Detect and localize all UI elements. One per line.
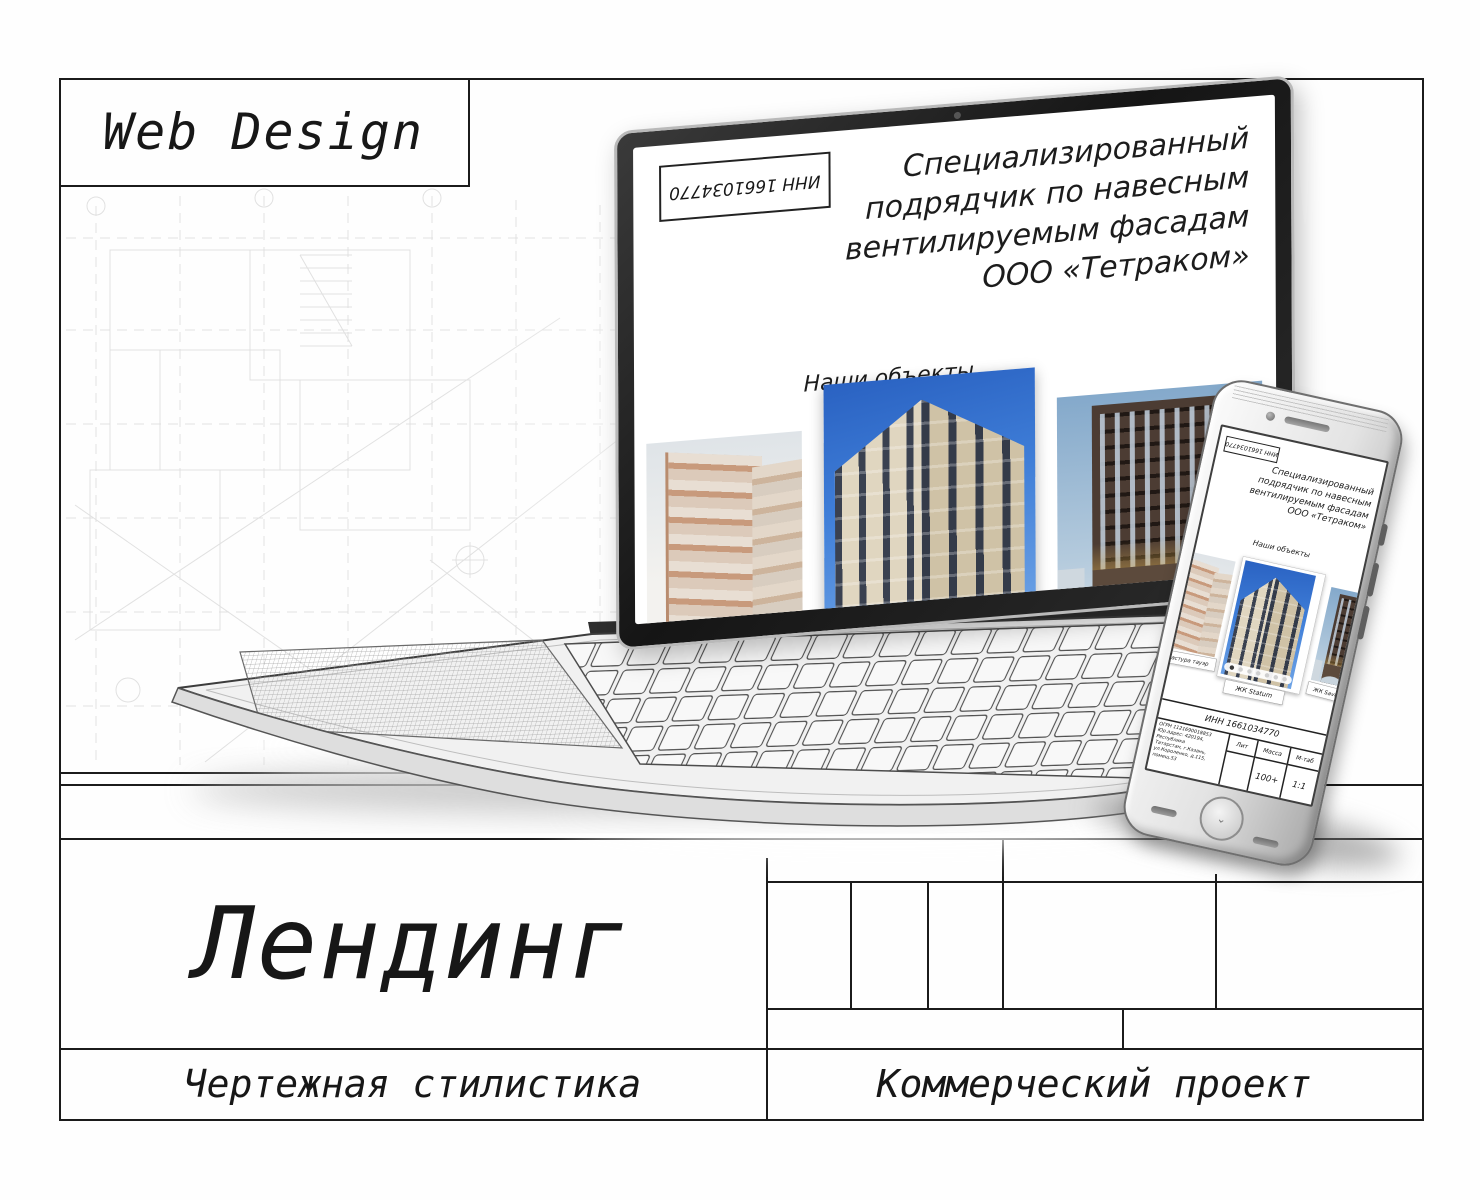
project-image[interactable] bbox=[646, 431, 802, 624]
design-poster: Web Design Лендинг Чертежная стилистика … bbox=[0, 0, 1480, 1200]
project-image[interactable] bbox=[824, 367, 1036, 624]
webcam-icon bbox=[954, 112, 961, 120]
camera-icon bbox=[1265, 411, 1276, 422]
building-art bbox=[834, 391, 1025, 624]
building-art bbox=[1058, 568, 1085, 619]
mass-value: 100+ bbox=[1247, 758, 1286, 799]
home-button[interactable]: ⌄ bbox=[1195, 792, 1247, 844]
mic-slot bbox=[1252, 836, 1279, 848]
building-art bbox=[665, 452, 762, 624]
building-art bbox=[752, 458, 802, 624]
projects-carousel: Мастура тауэр ЖК Statum bbox=[1164, 546, 1360, 729]
hero-title: Специализированный подрядчик по навесным… bbox=[1218, 455, 1375, 534]
mic-slot bbox=[1150, 805, 1177, 817]
hero-title: Специализированный подрядчик по навесным… bbox=[731, 119, 1250, 319]
project-card[interactable]: ЖК Statum bbox=[1216, 556, 1326, 694]
scale-value: 1:1 bbox=[1280, 765, 1318, 805]
